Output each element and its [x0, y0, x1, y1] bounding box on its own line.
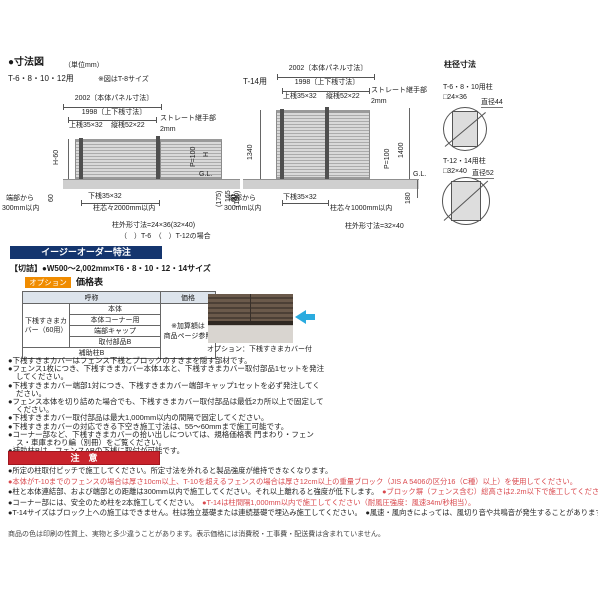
post-outline-note: 柱外形寸法=24×36(32×40) [112, 221, 195, 230]
dim-line [282, 200, 329, 206]
caution-text: ●所定の柱取付ピッチで施工してください。所定寸法を外れると製品強度が維持できなく… [8, 466, 332, 475]
price-table-title: 価格表 [76, 277, 103, 288]
left-model-note: ※図はT-8サイズ [98, 75, 149, 84]
caution-text-red: ●ブロック塀（フェンス含む）総高さは2.2m以下で施工してください。 [382, 487, 598, 496]
right-model-label: T-14用 [243, 77, 267, 87]
left-arrow-icon [295, 310, 306, 324]
section-title-dimensions: ●寸法図 [8, 57, 44, 69]
note-item: ●フェンス1枚につき、下桟すきまカバー本体1本と、下桟すきまカバー取付部品1セッ… [8, 365, 326, 381]
caution-line: ●所定の柱取付ピッチで施工してください。所定寸法を外れると製品強度が維持できなく… [8, 466, 598, 477]
caution-line: ●柱と本体連結部、および端部との距離は300mm以内で施工してください。それ以上… [8, 487, 598, 498]
dim-label: 1998〔上下桟寸法〕 [68, 108, 160, 117]
left-model-label: T-6・8・10・12用 [8, 74, 74, 84]
item-cell: 端部キャップ [70, 326, 161, 337]
edge-distance-value: 300mm以内 [224, 204, 261, 213]
post-section-title: 柱径寸法 [444, 60, 476, 70]
table-header-row: 呼称 価格 [23, 292, 216, 304]
dim-label: 2002〔本体パネル寸法〕 [278, 64, 378, 73]
fence-panel [276, 110, 370, 180]
post-pitch-label: 柱芯々2000mm以内 [93, 204, 155, 213]
note-item: ●下桟すきまカバー端部1対につき、下桟すきまカバー端部キャップ1セットを必ず発注… [8, 382, 326, 398]
top-rail-label: 上桟35×32 [69, 121, 103, 130]
joint-post [325, 107, 329, 182]
height-dim: H-60 [53, 150, 60, 165]
dimension-unit-label: （単位mm） [64, 61, 104, 70]
ground-band [243, 179, 419, 189]
option-notes-list: ●下桟すきまカバーはフェンス下桟とブロックのすきまを隠す部材です。 ●フェンス1… [8, 357, 326, 456]
caution-text-red: ●T-14は柱間隔1,000mm以内で施工してください（耐風圧強度：風速34m/… [202, 498, 475, 507]
post-outline-note2: （ ）T-6 （ ）T-12の場合 [120, 232, 211, 241]
embed-depth-dim: (175) [216, 191, 223, 207]
dim-extension-line [260, 110, 261, 180]
post1-label: T-6・8・10用柱 [443, 83, 493, 92]
under-gap-dim: 60 [48, 194, 55, 202]
easy-order-banner: イージーオーダー特注 [10, 246, 162, 259]
column-header-name: 呼称 [23, 292, 161, 304]
joint-post [156, 136, 160, 184]
dim-label: 2002〔本体パネル寸法〕 [62, 94, 166, 103]
post-pitch-label: 柱芯々1000mm以内 [330, 204, 392, 213]
left-arrow-tail [306, 314, 315, 320]
height-dim: 1340 [247, 144, 254, 160]
post1-diameter: 直径44 [481, 98, 503, 108]
joint-label: ストレート継手部 [371, 86, 427, 95]
photo-block-base [208, 325, 293, 343]
caution-text: ●柱と本体連結部、および端部との距離は300mm以内で施工してください。それ以上… [8, 487, 382, 496]
caution-line: ●T-14サイズはブロック上への施工はできません。柱は独立基礎または連続基礎で埋… [8, 508, 598, 519]
caution-text-red: ●本体がT-10までのフェンスの場合は厚さ10cm以上、T-10を超えるフェンス… [8, 477, 577, 486]
post2-label: T-12・14用柱 [443, 157, 486, 166]
fence-post [280, 109, 284, 188]
note-item: ●フェンス本体を切り詰めた場合でも、下桟すきまカバー取付部品は最低2カ所以上で固… [8, 398, 326, 414]
dim-extension-line [417, 180, 418, 198]
ground-band [63, 179, 240, 189]
price-note-line1: ※加算額は [162, 321, 214, 331]
joint-gap-label: 2mm [371, 97, 387, 106]
item-cell: 取付部品B [70, 337, 161, 348]
option-badge: オプション [25, 277, 71, 288]
item-cell: 本体コーナー用 [70, 315, 161, 326]
ground-level-label: G.L. [413, 170, 426, 179]
dim-label: 1998〔上下桟寸法〕 [282, 78, 372, 87]
joint-label: ストレート継手部 [160, 114, 216, 123]
table-row: 下桟すきまカバー（60用） 本体 ※加算額は 商品ページ参照 [23, 304, 216, 315]
vertical-rail-label: 縦桟52×22 [326, 92, 360, 101]
group-cell: 下桟すきまカバー（60用） [23, 304, 70, 348]
price-table: 呼称 価格 下桟すきまカバー（60用） 本体 ※加算額は 商品ページ参照 本体コ… [22, 291, 216, 359]
post2-diameter: 直径52 [472, 169, 494, 179]
price-note-line2: 商品ページ参照 [162, 331, 214, 341]
caution-text: ●コーナー部には、安全のため柱を2本施工してください。 [8, 498, 202, 507]
note-item: ●コーナー部など、下桟すきまカバーの拾い出しについては、規格価格表 門まわり・フ… [8, 431, 326, 447]
embed-depth-dim: 180 [405, 192, 412, 204]
photo-caption: オプション：下桟すきまカバー付 [207, 345, 312, 354]
edge-distance-label: 端部から [228, 194, 256, 203]
caution-text: ●T-14サイズはブロック上への施工はできません。柱は独立基礎または連続基礎で埋… [8, 508, 365, 517]
ground-level-label: G.L. [199, 170, 212, 179]
disclaimer-text: 商品の色は印刷の性質上、実物と多少違うことがあります。表示価格には消費税・工事費… [8, 529, 385, 539]
top-rail-label: 上桟35×32 [283, 92, 317, 101]
photo-panel-seam [250, 294, 251, 323]
edge-distance-label: 端部から [6, 194, 34, 203]
easy-order-spec: 【切詰】●W500～2,002mm×T6・8・10・12・14サイズ [10, 264, 211, 274]
edge-distance-value: 300mm以内 [2, 204, 39, 213]
joint-gap-label: 2mm [160, 125, 176, 134]
vertical-rail-label: 縦桟52×22 [111, 121, 145, 130]
pitch-dim: P=100 [384, 149, 391, 169]
post2-size: □32×40 [443, 167, 467, 176]
caution-banner: 注 意 [8, 451, 160, 465]
item-cell: 本体 [70, 304, 161, 315]
fence-panel [75, 139, 158, 180]
dim-extension-line [409, 108, 410, 180]
caution-text: ●風速・風向きによっては、風切り音や共鳴音が発生することがあります。 [365, 508, 598, 517]
caution-line: ●コーナー部には、安全のため柱を2本施工してください。 ●T-14は柱間隔1,0… [8, 498, 598, 509]
total-height-dim: 1400 [398, 142, 405, 158]
caution-line: ●本体がT-10までのフェンスの場合は厚さ10cm以上、T-10を超えるフェンス… [8, 477, 598, 488]
post1-size: □24×36 [443, 93, 467, 102]
caution-list: ●所定の柱取付ピッチで施工してください。所定寸法を外れると製品強度が維持できなく… [8, 466, 598, 519]
post-outline-note: 柱外形寸法=32×40 [345, 222, 404, 231]
pitch-dim: P=100 [190, 147, 197, 167]
h-dim: H [203, 152, 210, 157]
dim-extension-line [68, 139, 69, 180]
